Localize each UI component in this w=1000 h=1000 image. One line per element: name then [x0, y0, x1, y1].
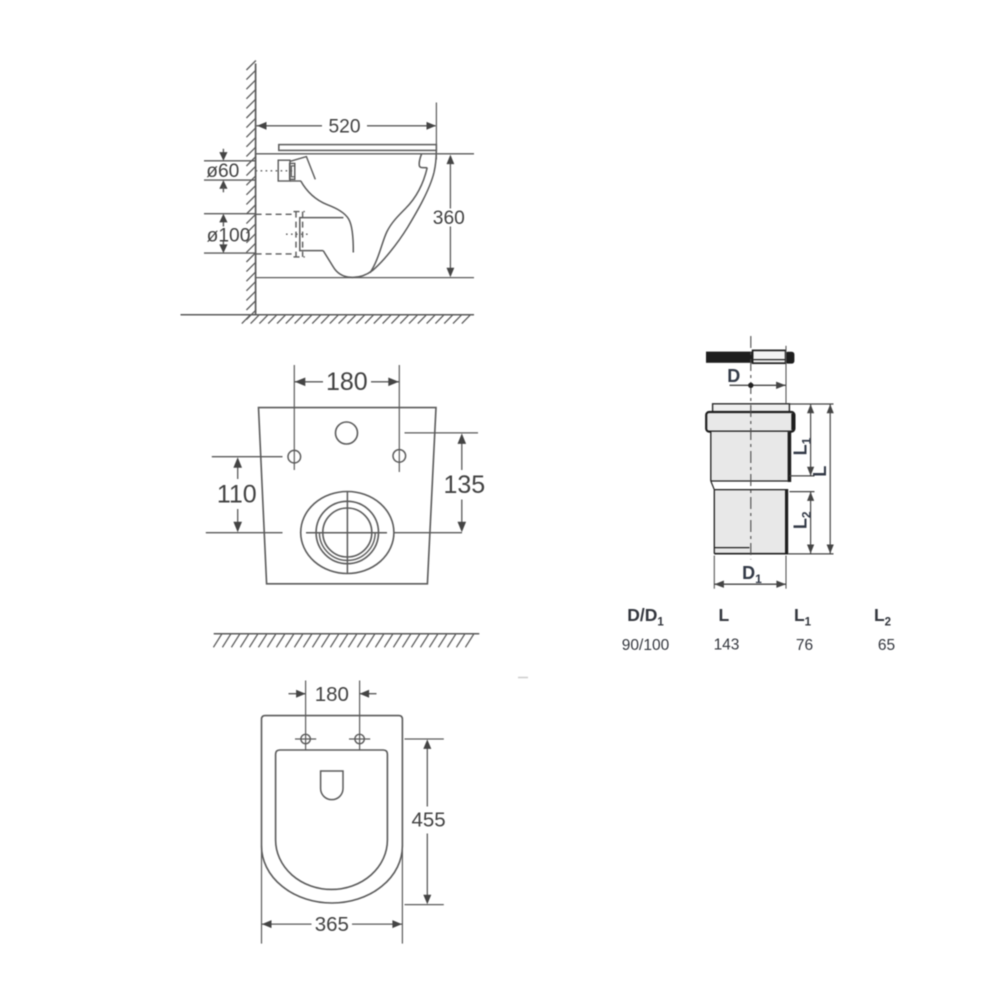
svg-text:D: D	[727, 366, 740, 386]
svg-text:ø100: ø100	[207, 225, 251, 246]
svg-text:L2: L2	[791, 511, 814, 529]
svg-text:ø60: ø60	[206, 161, 239, 182]
svg-text:365: 365	[315, 913, 349, 936]
svg-text:L1: L1	[794, 605, 812, 629]
svg-text:L: L	[718, 605, 729, 625]
svg-text:L: L	[810, 466, 830, 477]
svg-text:76: 76	[796, 637, 813, 654]
svg-text:D/D1: D/D1	[627, 605, 664, 629]
svg-text:143: 143	[714, 637, 740, 654]
svg-text:360: 360	[433, 208, 465, 229]
svg-text:90/100: 90/100	[622, 637, 670, 654]
svg-text:520: 520	[328, 116, 360, 137]
svg-text:65: 65	[878, 637, 895, 654]
svg-text:110: 110	[217, 481, 257, 509]
svg-text:455: 455	[411, 809, 445, 832]
svg-text:180: 180	[315, 683, 349, 706]
svg-text:L1: L1	[791, 437, 814, 455]
svg-text:135: 135	[443, 471, 485, 499]
svg-text:180: 180	[326, 368, 368, 396]
svg-text:D1: D1	[742, 563, 762, 586]
svg-text:L2: L2	[874, 605, 891, 629]
